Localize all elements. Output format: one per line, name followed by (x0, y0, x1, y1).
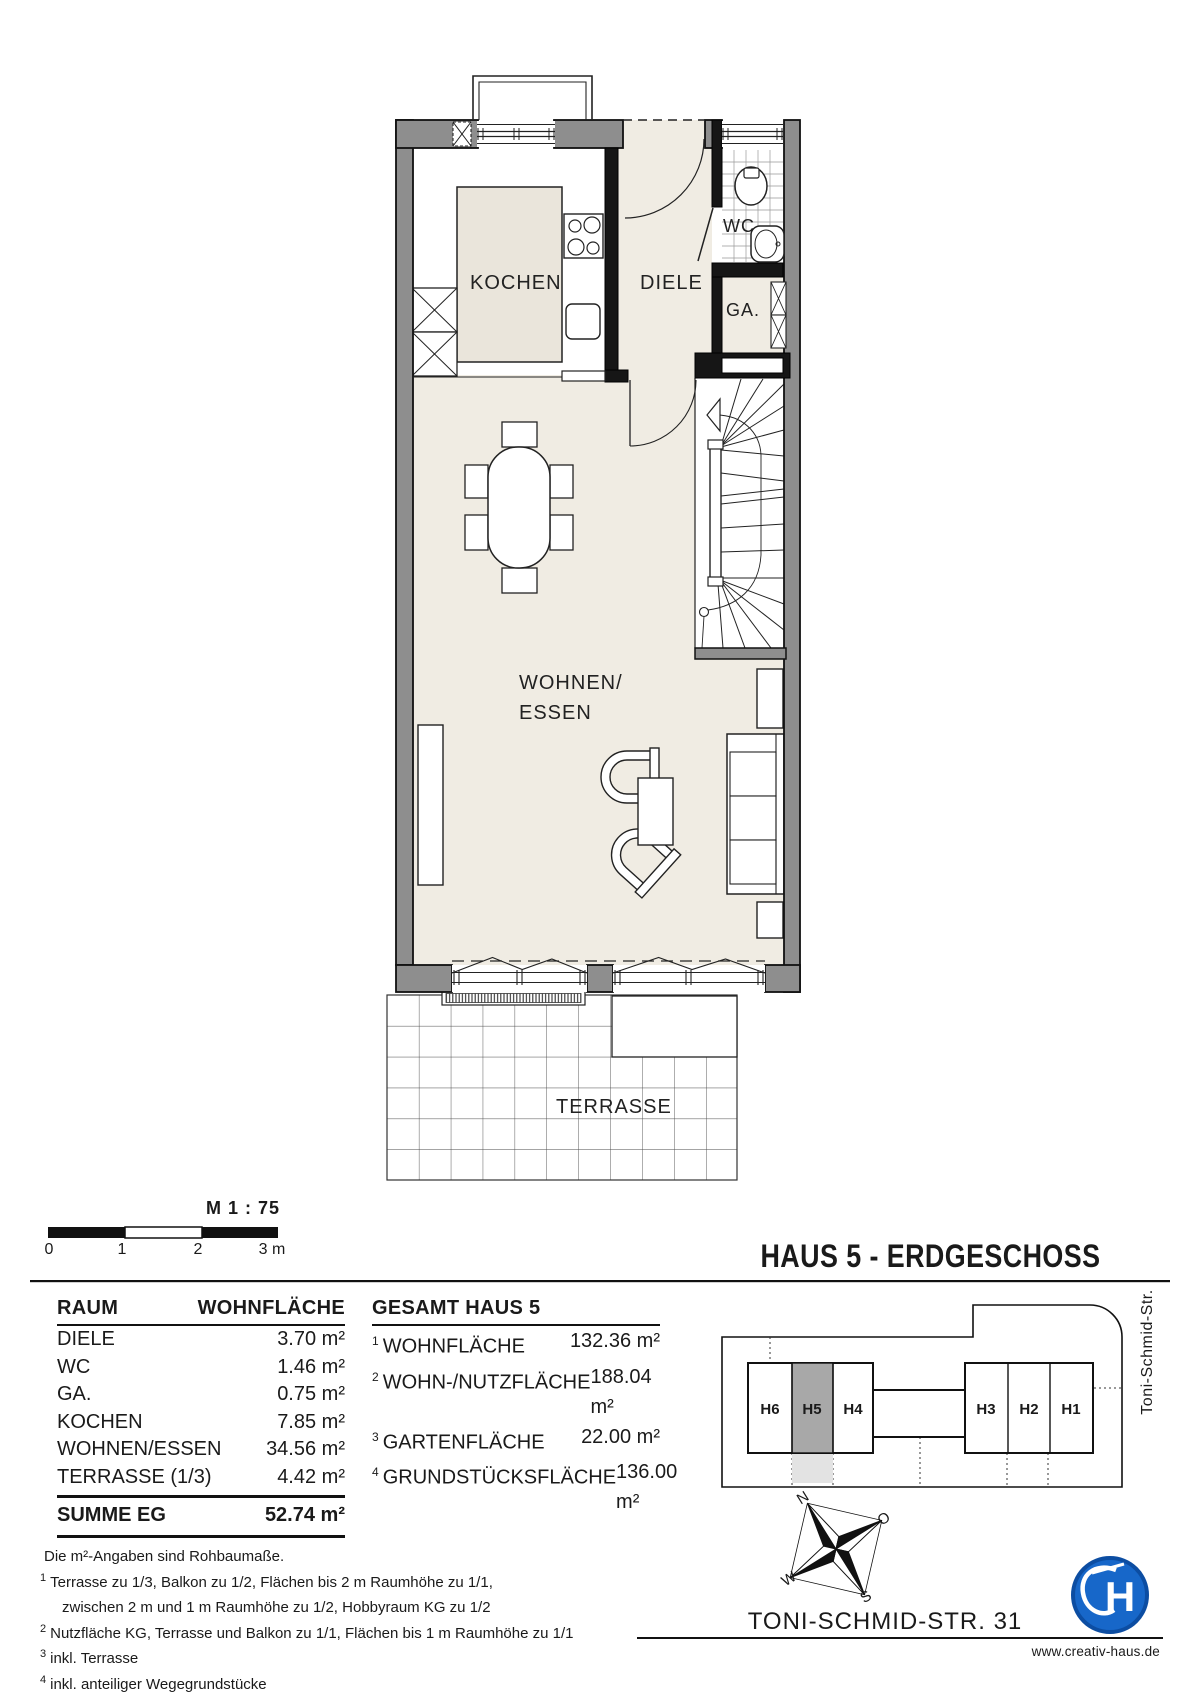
room-label-wohnen: WOHNEN/ (519, 672, 623, 695)
scale-label: M 1 : 75 (195, 1198, 280, 1219)
separator-line (30, 1280, 1170, 1282)
scale-tick-1: 1 (115, 1241, 129, 1259)
footer-rule (637, 1637, 1163, 1639)
stair-railing (710, 444, 721, 582)
wall-bottom-left (396, 965, 452, 992)
side-table (757, 669, 783, 728)
col-area: WOHNFLÄCHE (198, 1295, 345, 1321)
newel-post (700, 608, 709, 617)
coffee-table (638, 778, 673, 845)
scale-tick-0: 0 (42, 1241, 56, 1259)
wall-kitchen-partition (605, 148, 618, 370)
counter-end-cap (562, 371, 605, 381)
site-label-h5[interactable]: H5 (796, 1401, 828, 1418)
room-label-kochen: KOCHEN (470, 272, 562, 295)
room-label-wc: WC (723, 216, 755, 237)
note-line: 2Nutzfläche KG, Terrasse und Balkon zu 1… (40, 1619, 600, 1645)
wall-wc-left (712, 120, 722, 207)
room-label-terrasse: TERRASSE (556, 1096, 672, 1119)
creativ-haus-logo[interactable]: H (1073, 1558, 1147, 1632)
scale-bar[interactable] (48, 1227, 278, 1238)
wall-bottom-right (765, 965, 800, 992)
table-row: KOCHEN7.85 m² (57, 1409, 345, 1437)
totals-row: 4GRUNDSTÜCKSFLÄCHE136.00 m² (372, 1457, 660, 1517)
table-row: GA.0.75 m² (57, 1381, 345, 1409)
wardrobe (771, 282, 786, 348)
col-room: RAUM (57, 1295, 118, 1321)
h5-garden (792, 1453, 833, 1483)
terrace (387, 991, 737, 1180)
table-row: WC1.46 m² (57, 1354, 345, 1382)
totals-title: GESAMT HAUS 5 (372, 1295, 660, 1321)
totals-table: GESAMT HAUS 5 1WOHNFLÄCHE132.36 m² 2WOHN… (372, 1295, 660, 1517)
note-line: 4inkl. anteiliger Wegegrundstücke (40, 1670, 600, 1696)
chair (550, 465, 573, 498)
page-title: HAUS 5 - ERDGESCHOSS (760, 1238, 1078, 1275)
note-line: 1Terrasse zu 1/3, Balkon zu 1/2, Flächen… (40, 1568, 600, 1594)
table-row: TERRASSE (1/3)4.42 m² (57, 1464, 345, 1492)
totals-row: 1WOHNFLÄCHE132.36 m² (372, 1326, 660, 1362)
table-sum-row: SUMME EG52.74 m² (57, 1500, 345, 1531)
kitchen-sink (566, 304, 600, 339)
table-row: WOHNEN/ESSEN34.56 m² (57, 1436, 345, 1464)
site-label-h4[interactable]: H4 (837, 1401, 869, 1418)
site-connector (873, 1390, 965, 1437)
bay-window (473, 76, 592, 120)
totals-row: 3GARTENFLÄCHE22.00 m² (372, 1422, 660, 1458)
sideboard (418, 725, 443, 885)
site-plan (722, 1305, 1122, 1487)
compass-rose (762, 1475, 911, 1624)
site-label-h1[interactable]: H1 (1055, 1401, 1087, 1418)
chair (465, 465, 488, 498)
room-label-essen: ESSEN (519, 702, 592, 725)
note-line: zwischen 2 m und 1 m Raumhöhe zu 1/2, Ho… (40, 1593, 600, 1619)
washbasin (751, 226, 784, 262)
room-area-table: RAUM WOHNFLÄCHE DIELE3.70 m² WC1.46 m² G… (57, 1295, 345, 1540)
address: TONI-SCHMID-STR. 31 (745, 1608, 1025, 1636)
window-wc (722, 121, 783, 147)
table-row: DIELE3.70 m² (57, 1326, 345, 1354)
room-label-ga: GA. (726, 300, 760, 321)
street-label: Toni-Schmid-Str. (1139, 1289, 1157, 1414)
totals-row: 2WOHN-/NUTZFLÄCHE188.04 m² (372, 1362, 660, 1422)
chair (502, 422, 537, 447)
scale-tick-3: 3 m (252, 1241, 292, 1259)
room-label-diele: DIELE (640, 272, 703, 295)
site-label-h6[interactable]: H6 (754, 1401, 786, 1418)
wall-ga-left (712, 277, 722, 353)
chair (502, 568, 537, 593)
note-line: Die m²-Angaben sind Rohbaumaße. (40, 1542, 600, 1568)
chair (550, 515, 573, 550)
floorplan-sheet: H KOCHEN DIELE WC GA. WOHNEN/ ESSEN TERR… (0, 0, 1200, 1698)
website-link[interactable]: www.creativ-haus.de (1000, 1644, 1160, 1659)
stair-edge-wall (695, 648, 786, 659)
chair (465, 515, 488, 550)
terrace-step (612, 996, 737, 1057)
wall-wc-bottom (712, 263, 783, 277)
footnotes: Die m²-Angaben sind Rohbaumaße. 1Terrass… (40, 1542, 600, 1695)
site-label-h2[interactable]: H2 (1013, 1401, 1045, 1418)
wall-left (396, 120, 413, 965)
note-line: 3inkl. Terrasse (40, 1644, 600, 1670)
side-table (757, 902, 783, 938)
wall-right (784, 120, 800, 992)
window-kitchen (477, 121, 555, 147)
wall-niche (722, 358, 783, 373)
site-label-h3[interactable]: H3 (970, 1401, 1002, 1418)
scale-tick-2: 2 (191, 1241, 205, 1259)
dining-table (488, 447, 550, 568)
wall-top-pier (554, 120, 623, 148)
wall-bottom-pier (587, 965, 613, 992)
